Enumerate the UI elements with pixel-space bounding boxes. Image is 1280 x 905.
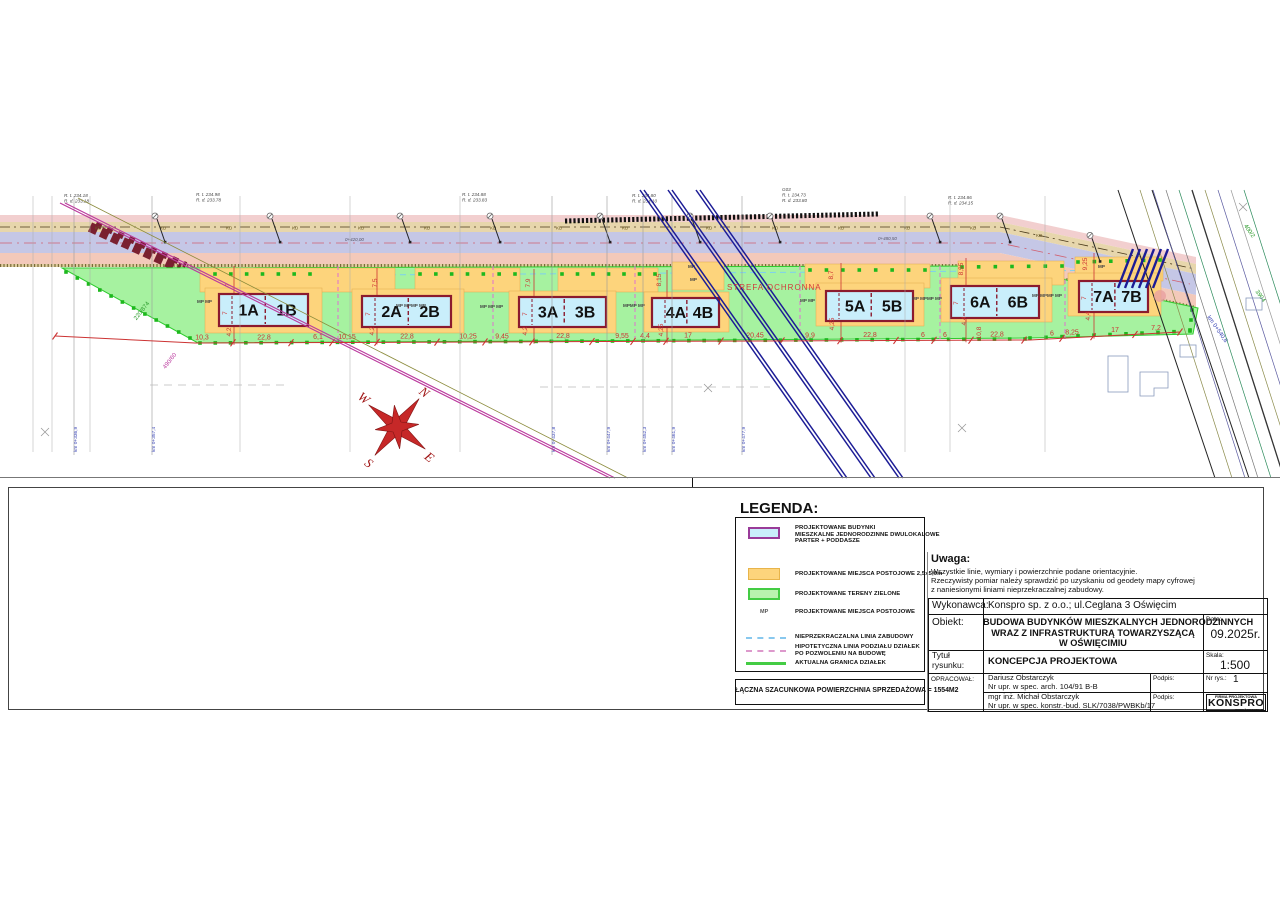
green-boundary-dot	[890, 268, 894, 272]
boundary-diagonal-line	[1205, 190, 1280, 478]
compass-w: W	[355, 389, 374, 408]
road-kd-label: KD	[838, 226, 845, 231]
green-boundary-dot	[808, 268, 812, 272]
drawing-title-value: KONCEPCJA PROJEKTOWA	[988, 656, 1117, 667]
pole-anchor	[1009, 241, 1012, 244]
green-boundary-dot	[1189, 318, 1193, 322]
building-unit-label: 5A	[845, 299, 866, 316]
legend-line-hypothetical	[746, 650, 786, 652]
parking-space-label: MP MP	[197, 299, 212, 304]
legend-swatch-green	[748, 588, 780, 600]
green-boundary-dot	[245, 272, 249, 276]
contractor-label: Wykonawca:	[932, 600, 989, 611]
dimension-label: 6	[1050, 330, 1054, 337]
chainage-label: 0+480,50	[878, 236, 897, 241]
green-boundary-dot	[166, 324, 170, 328]
vertical-dimension-label: 7	[365, 312, 372, 316]
survey-level-label: R. d. 233.83	[462, 198, 487, 203]
legend-mp-symbol: MP	[760, 609, 768, 615]
compass-s: S	[362, 455, 377, 471]
green-boundary-dot	[1076, 260, 1080, 264]
vertical-dimension-label: 7	[1081, 296, 1088, 300]
vertical-dimension-label: 7	[522, 312, 529, 316]
tb-rule	[928, 614, 1268, 615]
building-unit-label: 3A	[538, 305, 559, 322]
green-boundary-dot	[75, 276, 79, 280]
green-boundary-dot	[434, 272, 438, 276]
green-boundary-dot	[1044, 336, 1048, 340]
chainage-section-label: km 0+452,3	[642, 426, 648, 452]
road-kd-label: KD	[95, 226, 102, 231]
green-boundary-dot	[188, 336, 192, 340]
vertical-dimension-label: 4,25	[658, 323, 665, 336]
legend-item-hypothetical: HIPOTETYCZNA LINIA PODZIAŁU DZIAŁEKPO PO…	[795, 644, 920, 657]
building-unit-label: 3B	[575, 305, 595, 322]
parking-zone	[415, 268, 520, 292]
green-boundary-dot	[308, 272, 312, 276]
vertical-dimension-label: 4,4	[1085, 311, 1092, 320]
dimension-label: 6	[943, 332, 947, 339]
chainage-label: 0+420,00	[345, 237, 364, 242]
building-unit-label: 6A	[970, 295, 991, 312]
parking-space-label: MP MPMP MP	[912, 296, 942, 301]
survey-level-label: R. t. 234.88	[462, 192, 486, 197]
date-value: 09.2025r.	[1203, 627, 1268, 641]
pole-anchor	[699, 241, 702, 244]
note-body: Wszystkie linie, wymiary i powierzchnie …	[931, 567, 1195, 594]
parcel-number-label: 3904	[1254, 289, 1267, 304]
legend-sum-text: ŁĄCZNA SZACUNKOWA POWIERZCHNIA SPRZEDAŻO…	[735, 687, 925, 694]
road-kd-label: KD	[556, 226, 563, 231]
green-boundary-dot	[1028, 336, 1032, 340]
dimension-label: 17	[1111, 327, 1119, 334]
green-boundary-dot	[1188, 328, 1192, 332]
green-boundary-dot	[482, 272, 486, 276]
vertical-dimension-label: 7	[953, 301, 960, 305]
building-unit-label: 6B	[1008, 295, 1028, 312]
survey-level-label: R. t. 234.98	[196, 192, 220, 197]
vertical-dimension-label: 8,95	[958, 262, 965, 275]
green-boundary-dot	[1172, 330, 1176, 334]
site-plan-drawing: 1A1B2A2B3A3B4A4B5A5B6A6B7A7B74,277,54,27…	[0, 188, 1280, 480]
green-boundary-dot	[1044, 264, 1048, 268]
legend-swatch-parking	[748, 568, 780, 580]
green-boundary-dot	[292, 272, 296, 276]
green-boundary-dot	[560, 272, 564, 276]
pole-anchor	[609, 241, 612, 244]
green-boundary-dot	[261, 272, 265, 276]
parking-space-label: MP MP MP	[480, 304, 503, 309]
dimension-label: 7,2	[1151, 325, 1161, 332]
green-boundary-dot	[213, 272, 217, 276]
dimension-label: 4,4	[640, 333, 650, 340]
pole-anchor	[779, 241, 782, 244]
dimension-label: 22,8	[863, 332, 877, 339]
author1: Dariusz ObstarczykNr upr. w spec. arch. …	[988, 674, 1098, 692]
parking-space-label: MPMP MP	[623, 303, 645, 308]
legend-item-limit: NIEPRZEKRACZALNA LINIA ZABUDOWY	[795, 634, 914, 641]
parking-space-label: MP MPMP MP	[396, 303, 426, 308]
parking-space-label: MP MP	[800, 298, 815, 303]
survey-level-label: R. d. 233.18	[64, 199, 89, 204]
dimension-label: 22,8	[400, 334, 414, 341]
road-kd-label: KD	[424, 226, 431, 231]
dimension-label: 22,8	[257, 334, 271, 341]
green-boundary-dot	[1109, 259, 1113, 263]
green-boundary-dot	[466, 272, 470, 276]
road-kd-label: KD	[706, 226, 713, 231]
green-boundary-dot	[64, 270, 68, 274]
vertical-dimension-label: 7,9	[525, 278, 532, 287]
object-value: BUDOWA BUDYNKÓW MIESZKALNYCH JEDNORODZIN…	[983, 617, 1203, 649]
fold-mark	[692, 478, 693, 487]
dimension-label: 10,3	[195, 334, 209, 341]
dimension-label: 8,25	[1065, 329, 1079, 336]
survey-level-label: G03	[782, 188, 791, 192]
legend-item-parking: PROJEKTOWANE MIEJSCA POSTOJOWE 2,5x5,0m	[795, 571, 943, 578]
dimension-label: 9,9	[805, 332, 815, 339]
dimension-label: 17	[684, 333, 692, 340]
dimension-label: 9,55	[615, 333, 629, 340]
pole-anchor	[279, 241, 282, 244]
vertical-dimension-label: 4,4	[961, 316, 968, 325]
legend-line-limit	[746, 637, 786, 639]
building-unit-label: 1A	[238, 303, 259, 320]
pole-anchor	[499, 241, 502, 244]
note-title: Uwaga:	[931, 553, 970, 565]
parking-space-label: MP MPMP MP	[1032, 293, 1062, 298]
legend-item-mp: PROJEKTOWANE MIEJSCA POSTOJOWE	[795, 609, 915, 616]
parking-space-label: MP	[690, 277, 697, 282]
dimension-label: 10,25	[459, 334, 477, 341]
drawing-title-label: Tytułrysunku:	[932, 651, 964, 670]
vertical-dimension-label: 8,7	[828, 270, 835, 279]
dimension-label: 9,45	[495, 333, 509, 340]
compass-e: E	[421, 448, 437, 465]
vertical-dimension-label: 9,25	[1082, 257, 1089, 270]
building-unit-label: 7B	[1121, 289, 1141, 306]
green-boundary-dot	[154, 318, 158, 322]
green-boundary-dot	[1027, 265, 1031, 269]
green-boundary-dot	[977, 265, 981, 269]
existing-building-outline	[1140, 372, 1168, 396]
konspro-logo: FIRMA PROJEKTOWA KONSPRO www.konspro.pl	[1206, 694, 1266, 712]
site-plan-sheet: 1A1B2A2B3A3B4A4B5A5B6A6B7A7B74,277,54,27…	[0, 0, 1280, 905]
survey-level-label: R. d. 234.15	[948, 201, 973, 206]
green-boundary-dot	[923, 268, 927, 272]
compass-star-diagonal	[372, 402, 421, 451]
road-kd-label: KD	[622, 226, 629, 231]
prepared-by-label: OPRACOWAŁ:	[931, 676, 974, 683]
legend-swatch-building	[748, 527, 780, 539]
date-label: Data:	[1206, 616, 1221, 623]
parcel-number-label: 490/60	[162, 352, 178, 371]
green-boundary-dot	[450, 272, 454, 276]
chainage-section-label: km 0+357,4	[151, 426, 157, 452]
legend-item-buildings: PROJEKTOWANE BUDYNKIMIESZKALNE JEDNORODZ…	[795, 525, 940, 545]
parking-space-label: MP	[1098, 264, 1105, 269]
road-kd-label: KD	[226, 226, 233, 231]
tb-rule	[983, 598, 984, 712]
green-boundary-dot	[622, 272, 626, 276]
green-boundary-dot	[874, 268, 878, 272]
crossing-island	[1154, 290, 1166, 302]
drawing-no-value: 1	[1233, 674, 1239, 685]
vertical-dimension-label: 4,25	[829, 317, 836, 330]
vertical-dimension-label: 4,2	[522, 326, 529, 335]
existing-building-outline	[1108, 356, 1128, 392]
building-unit-label: 4B	[693, 305, 713, 322]
logo-name: KONSPRO	[1207, 699, 1265, 709]
green-boundary-dot	[497, 272, 501, 276]
green-boundary-dot	[857, 268, 861, 272]
green-boundary-dot	[576, 272, 580, 276]
survey-level-label: R. d. 233.80	[782, 198, 807, 203]
green-boundary-dot	[132, 306, 136, 310]
green-boundary-dot	[1158, 258, 1162, 262]
vertical-dimension-label: 4,2	[226, 327, 233, 336]
vertical-dimension-label: 10,8	[976, 326, 983, 339]
vertical-dimension-label: 4,2	[369, 326, 376, 335]
chainage-section-label: km 0+336,9	[73, 426, 79, 452]
survey-level-label: R. t. 234.18	[64, 193, 88, 198]
road-kd-label: KD	[1036, 233, 1043, 238]
dimension-label: 22,8	[990, 332, 1004, 339]
signature-label-1: Podpis:	[1153, 675, 1174, 682]
green-boundary-dot	[763, 338, 767, 342]
scale-value: 1:500	[1220, 658, 1250, 672]
tb-rule	[928, 673, 1268, 674]
green-boundary-dot	[121, 300, 125, 304]
survey-level-label: R. d. 233.78	[196, 198, 221, 203]
green-boundary-dot	[177, 330, 181, 334]
green-boundary-dot	[638, 272, 642, 276]
green-boundary-dot	[907, 268, 911, 272]
green-boundary-dot	[994, 265, 998, 269]
green-boundary-dot	[277, 272, 281, 276]
legend-line-boundary	[746, 662, 786, 665]
vertical-dimension-label: 8,15	[656, 273, 663, 286]
contractor-value: Konspro sp. z o.o.; ul.Ceglana 3 Oświęci…	[988, 600, 1176, 611]
dimension-label: 6,1	[313, 334, 323, 341]
green-boundary-dot	[591, 272, 595, 276]
author2: mgr inż. Michał ObstarczykNr upr. w spec…	[988, 693, 1155, 711]
survey-level-label: R. t. 234.73	[782, 193, 806, 198]
road-kd-label: KD	[358, 226, 365, 231]
boundary-diagonal-line	[1192, 190, 1280, 478]
protection-zone-label: STREFA OCHRONNA	[727, 283, 822, 292]
green-boundary-dot	[702, 339, 706, 343]
parcel-number-label: km 0+540,8	[1205, 315, 1228, 345]
road-kd-label: KD	[970, 226, 977, 231]
pole-anchor	[1099, 260, 1102, 263]
legend-title: LEGENDA:	[740, 500, 818, 517]
legend-item-boundary: AKTUALNA GRANICA DZIAŁEK	[795, 660, 886, 667]
green-boundary-dot	[98, 288, 102, 292]
chainage-section-label: km 0+477,9	[741, 426, 747, 452]
green-boundary-dot	[418, 272, 422, 276]
road-kd-label: KD	[292, 226, 299, 231]
green-boundary-dot	[794, 338, 798, 342]
pole-anchor	[409, 241, 412, 244]
building-unit-label: 5B	[882, 299, 902, 316]
green-boundary-dot	[1060, 264, 1064, 268]
green-boundary-dot	[657, 339, 661, 343]
green-boundary-dot	[841, 268, 845, 272]
green-boundary-dot	[513, 272, 517, 276]
green-boundary-dot	[672, 339, 676, 343]
compass-rose: N E S W	[325, 356, 466, 480]
building-unit-label: 4A	[666, 305, 687, 322]
dimension-label: 22,8	[556, 333, 570, 340]
pole-anchor	[939, 241, 942, 244]
green-boundary-dot	[109, 294, 113, 298]
tb-rule	[928, 650, 1268, 651]
vertical-dimension-label: 7,5	[372, 278, 379, 287]
signature-label-2: Podpis:	[1153, 694, 1174, 701]
dimension-label: 6	[921, 332, 925, 339]
chainage-section-label: km 0+461,9	[671, 426, 677, 452]
drawing-no-label: Nr rys.:	[1206, 675, 1227, 682]
building-unit-label: 7A	[1093, 289, 1114, 306]
chainage-section-label: km 0+447,9	[606, 426, 612, 452]
green-boundary-dot	[1010, 265, 1014, 269]
existing-building-outline	[1180, 345, 1196, 357]
object-label: Obiekt:	[932, 617, 964, 628]
vertical-dimension-label: 7	[222, 311, 229, 315]
survey-level-label: R. t. 234.86	[948, 195, 972, 200]
green-boundary-dot	[733, 339, 737, 343]
legend-item-green: PROJEKTOWANE TERENY ZIELONE	[795, 591, 900, 598]
